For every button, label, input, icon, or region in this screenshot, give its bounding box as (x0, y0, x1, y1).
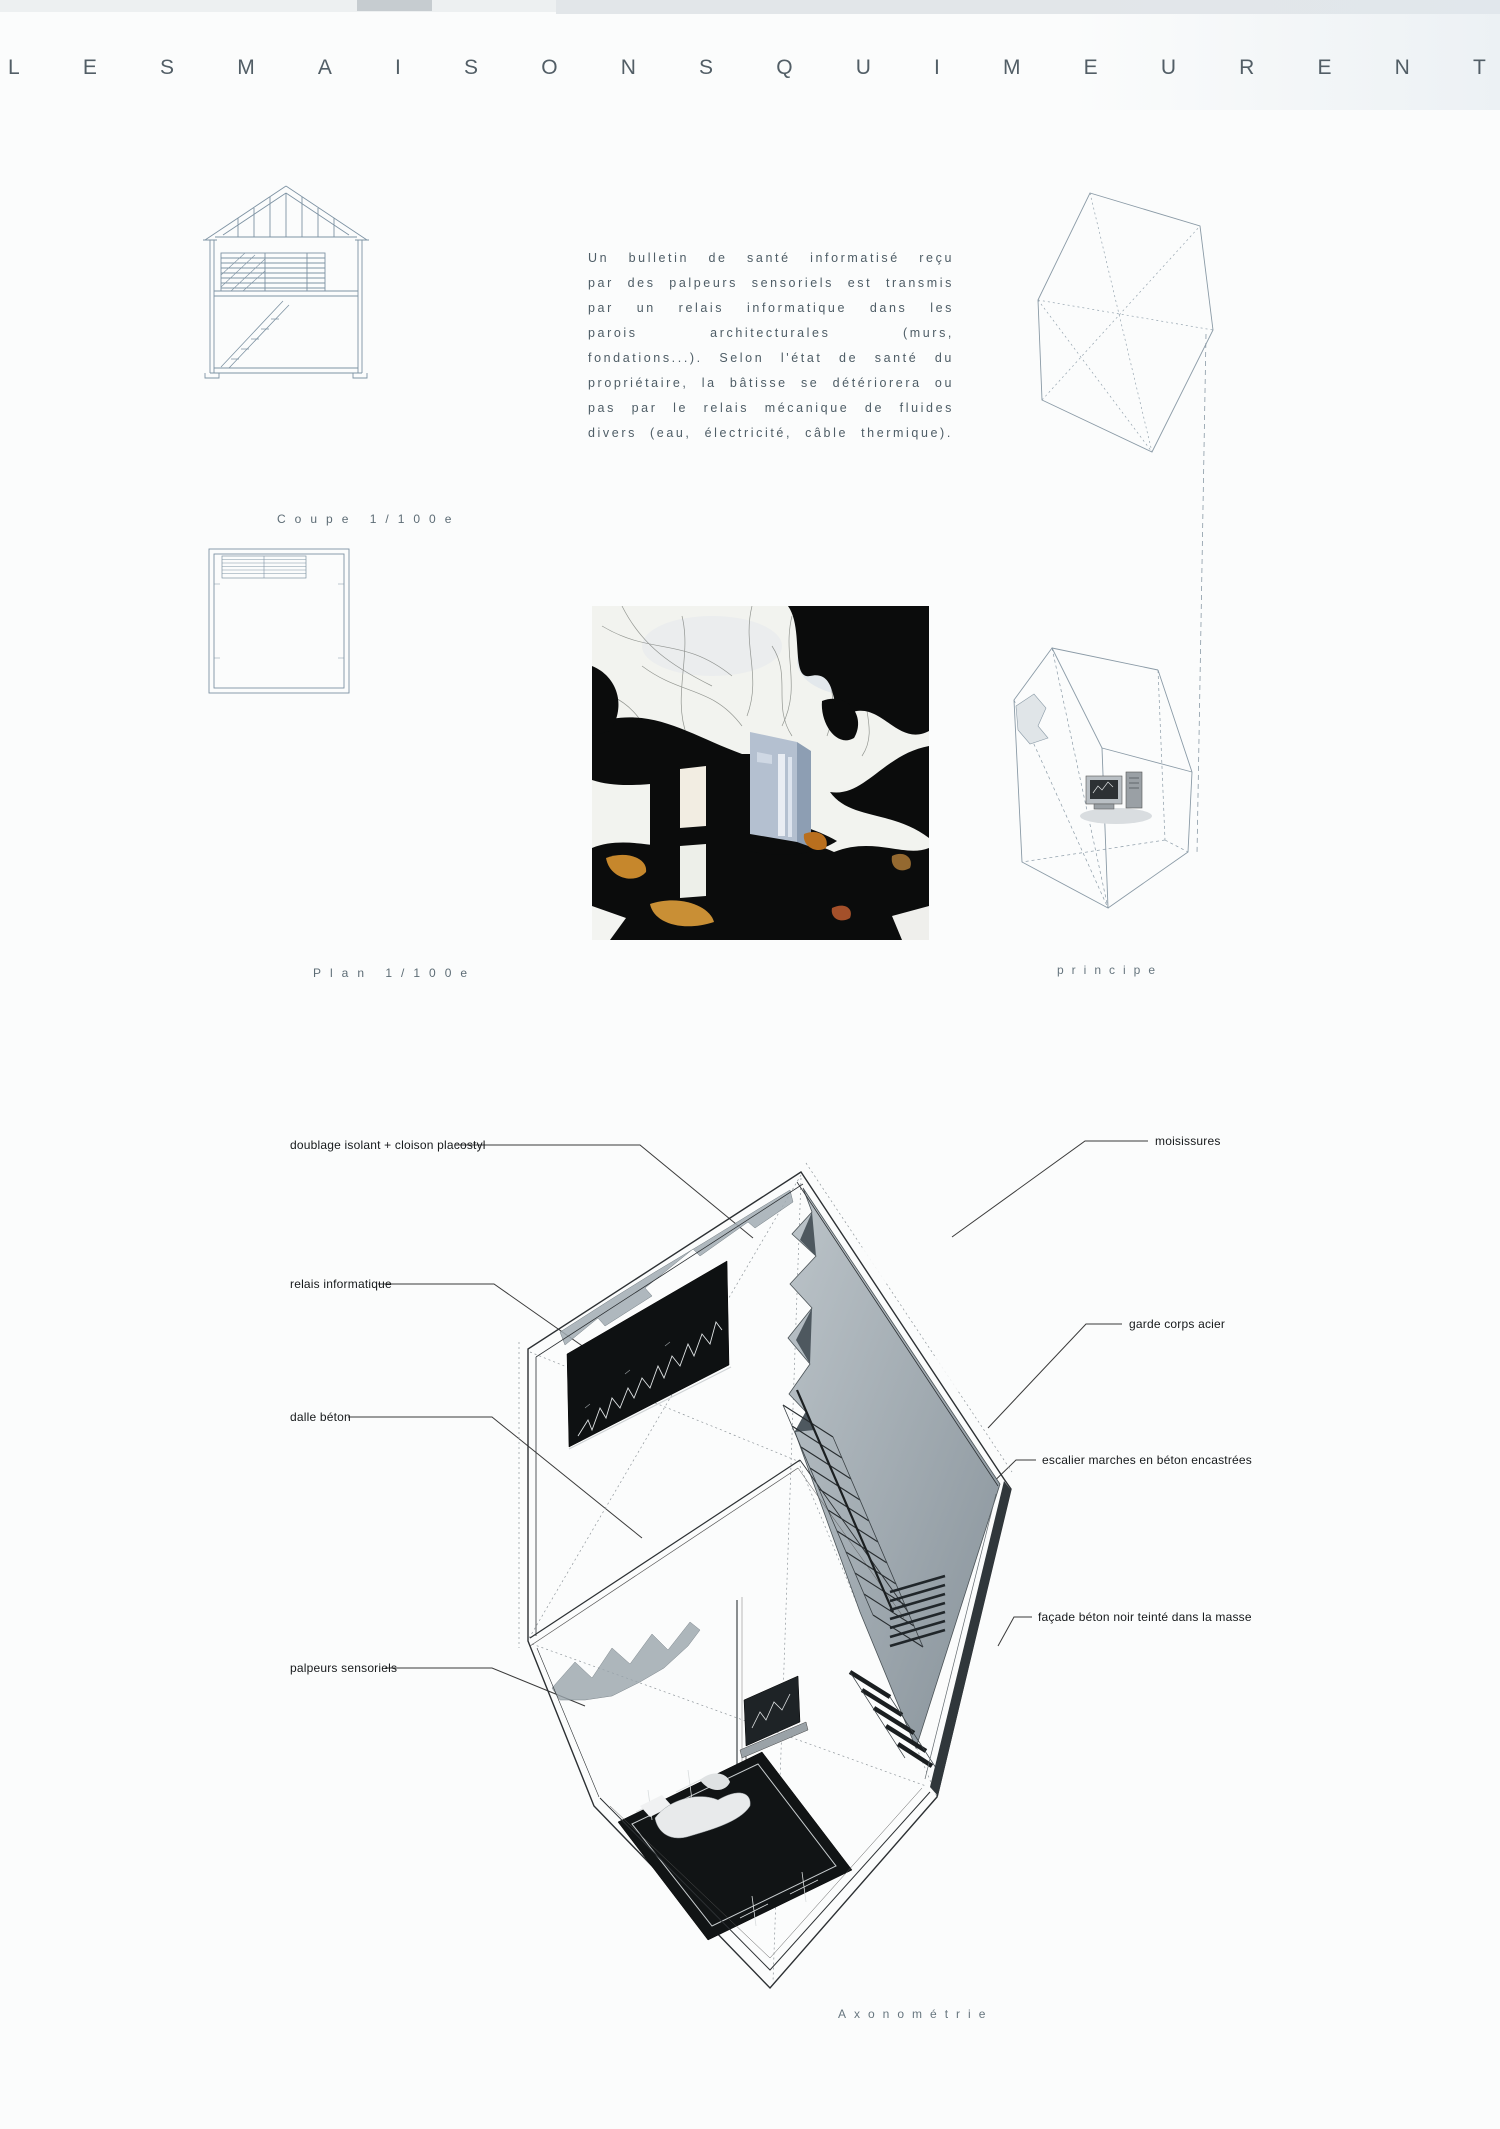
principe-diagram (1000, 178, 1240, 978)
label-facade: façade béton noir teinté dans la masse (1038, 1610, 1252, 1624)
presentation-board: LESMAISONSQUIMEURENT Un bulletin de sant… (0, 0, 1500, 2129)
photo-house-in-tree (592, 606, 929, 940)
computer-image (1080, 772, 1152, 824)
principe-caption: principe (1057, 963, 1163, 977)
label-palpeurs: palpeurs sensoriels (290, 1661, 397, 1675)
scan-corner-tint (1070, 0, 1500, 110)
label-relais: relais informatique (290, 1277, 392, 1291)
label-dalle: dalle béton (290, 1410, 351, 1424)
axonometrie-caption: Axonométrie (838, 2007, 993, 2021)
label-doublage: doublage isolant + cloison placostyl (290, 1138, 486, 1152)
bed (618, 1752, 852, 1940)
coupe-section-drawing (203, 183, 369, 379)
plan-drawing (208, 548, 350, 694)
leader-lines (348, 1141, 1148, 1706)
label-garde-corps: garde corps acier (1129, 1317, 1225, 1331)
page-title: LESMAISONSQUIMEURENT (8, 56, 1486, 82)
grey-house (750, 732, 811, 847)
palpeurs-band (552, 1622, 700, 1700)
plan-caption: Plan 1/100e (313, 966, 476, 980)
scan-artifact-dark (357, 0, 432, 11)
label-moisissures: moisissures (1155, 1134, 1221, 1148)
axonometrie-drawing (200, 1120, 1420, 2010)
relais-screen (567, 1261, 731, 1449)
unfolded-net (1038, 193, 1213, 452)
label-escalier: escalier marches en béton encastrées (1042, 1453, 1252, 1467)
black-house (650, 754, 750, 898)
coupe-caption: Coupe 1/100e (277, 512, 460, 526)
intro-paragraph: Un bulletin de santé informatisé reçu pa… (588, 246, 954, 446)
